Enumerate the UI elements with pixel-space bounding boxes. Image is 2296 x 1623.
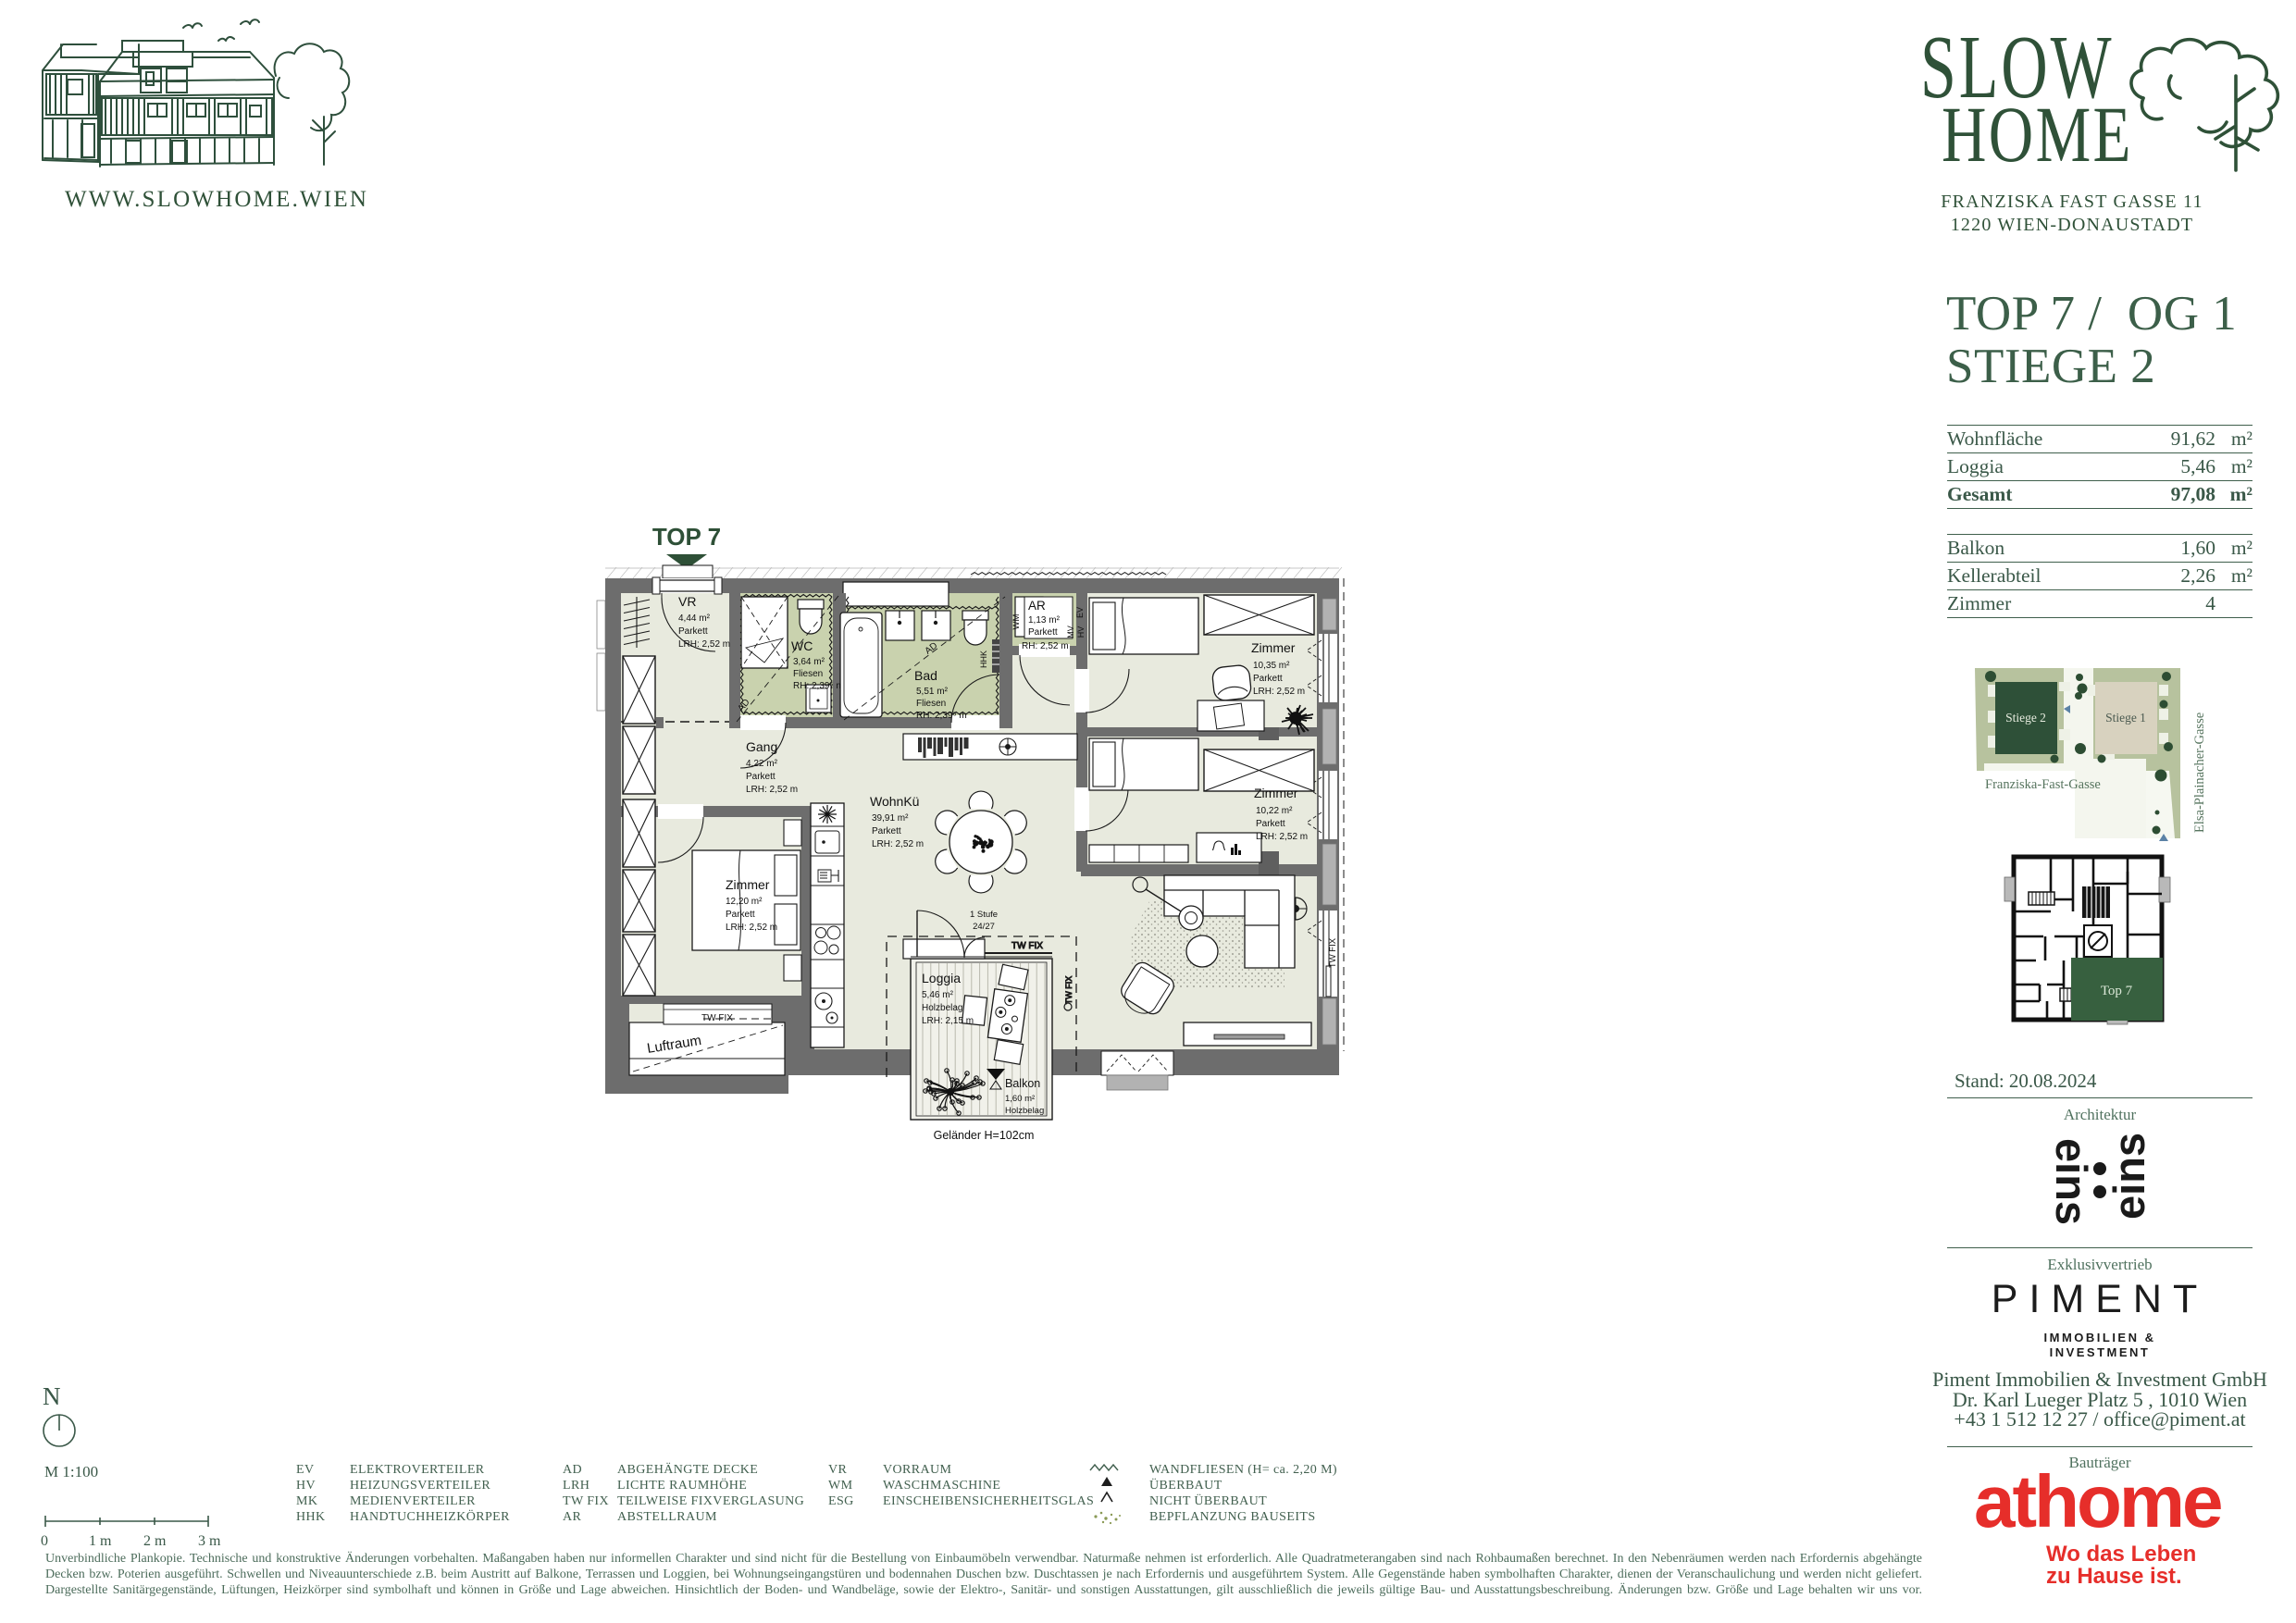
svg-text:39,91 m²: 39,91 m² (872, 813, 909, 824)
svg-text:MV: MV (1066, 626, 1075, 638)
svg-text:Franziska-Fast-Gasse: Franziska-Fast-Gasse (1985, 777, 2101, 792)
svg-text:LRH: 2,52 m: LRH: 2,52 m (726, 923, 777, 933)
svg-text:WC: WC (791, 638, 813, 653)
svg-text:Zimmer: Zimmer (1254, 786, 1298, 800)
svg-text:Zimmer: Zimmer (1251, 640, 1296, 655)
svg-text:5,51 m²: 5,51 m² (916, 687, 949, 697)
svg-text:Gang: Gang (746, 739, 777, 754)
svg-text:10,22 m²: 10,22 m² (1256, 806, 1293, 816)
svg-text:TW FIX: TW FIX (1328, 937, 1338, 968)
svg-text:HHK: HHK (979, 650, 988, 668)
svg-text:AR: AR (1028, 599, 1046, 613)
svg-text:Bad: Bad (914, 668, 937, 683)
svg-text:Fliesen: Fliesen (793, 669, 823, 679)
svg-text:TW FIX: TW FIX (1064, 976, 1074, 1005)
svg-text:LRH: 2,52 m: LRH: 2,52 m (872, 839, 924, 849)
svg-text:RH: 2,52 m: RH: 2,52 m (1022, 641, 1069, 651)
svg-text:3,64 m²: 3,64 m² (793, 657, 825, 667)
svg-text:0: 0 (41, 1533, 48, 1549)
svg-text:eins: eins (2104, 1133, 2153, 1220)
svg-text:4,22 m²: 4,22 m² (746, 759, 778, 769)
svg-text:Parkett: Parkett (872, 826, 901, 836)
svg-text:RH: 2,39⁵ m: RH: 2,39⁵ m (793, 681, 844, 691)
svg-text:LRH: 2,52 m: LRH: 2,52 m (746, 785, 798, 795)
svg-text:VR: VR (678, 594, 696, 609)
svg-text:HV: HV (1076, 626, 1086, 638)
svg-text:12,20 m²: 12,20 m² (726, 897, 763, 907)
svg-text:Stiege 1: Stiege 1 (2105, 711, 2146, 725)
svg-text:Holzbelag: Holzbelag (1005, 1106, 1044, 1116)
svg-text:EV: EV (1075, 607, 1085, 618)
svg-text:5,46 m²: 5,46 m² (922, 990, 954, 1000)
svg-text:TOP 7: TOP 7 (652, 523, 721, 551)
svg-text:2 m: 2 m (143, 1533, 167, 1549)
svg-text:LRH: 2,15 m: LRH: 2,15 m (922, 1016, 974, 1026)
svg-text:Top 7: Top 7 (2101, 984, 2133, 998)
svg-text:Parkett: Parkett (1028, 627, 1058, 638)
svg-text:RH: 2,39⁵ m: RH: 2,39⁵ m (916, 711, 967, 721)
svg-text:LRH: 2,52 m: LRH: 2,52 m (1253, 687, 1305, 697)
svg-text:1 m: 1 m (89, 1533, 112, 1549)
svg-text:LRH: 2,52 m: LRH: 2,52 m (678, 639, 730, 650)
svg-text:Parkett: Parkett (678, 626, 708, 637)
svg-text:Elsa-Plainacher-Gasse: Elsa-Plainacher-Gasse (2192, 712, 2207, 833)
svg-text:Loggia: Loggia (922, 971, 961, 985)
svg-text:N: N (43, 1382, 61, 1410)
svg-text:Parkett: Parkett (726, 910, 755, 920)
svg-text:10,35 m²: 10,35 m² (1253, 661, 1290, 671)
svg-text:Holzbelag: Holzbelag (922, 1003, 962, 1013)
svg-text:1,13 m²: 1,13 m² (1028, 615, 1061, 626)
svg-text:eins: eins (2047, 1138, 2096, 1225)
svg-text:3 m: 3 m (198, 1533, 221, 1549)
svg-text:LRH: 2,52 m: LRH: 2,52 m (1256, 832, 1308, 842)
svg-text:Stiege 2: Stiege 2 (2005, 711, 2046, 725)
svg-text:24/27: 24/27 (973, 922, 995, 932)
svg-text:WM: WM (1011, 613, 1022, 629)
svg-text:1,60 m²: 1,60 m² (1005, 1094, 1035, 1104)
svg-text:Geländer H=102cm: Geländer H=102cm (934, 1129, 1035, 1142)
svg-text:Balkon: Balkon (1005, 1077, 1040, 1090)
svg-text:Parkett: Parkett (1256, 819, 1285, 829)
svg-text:4,44 m²: 4,44 m² (678, 613, 711, 624)
svg-text:1 Stufe: 1 Stufe (970, 910, 998, 920)
svg-text:Parkett: Parkett (1253, 674, 1283, 684)
svg-text:Fliesen: Fliesen (916, 699, 946, 709)
svg-text:Zimmer: Zimmer (726, 877, 770, 892)
svg-text:TW FIX: TW FIX (1011, 941, 1043, 951)
svg-text:Parkett: Parkett (746, 772, 776, 782)
svg-text:WohnKü: WohnKü (870, 794, 919, 809)
